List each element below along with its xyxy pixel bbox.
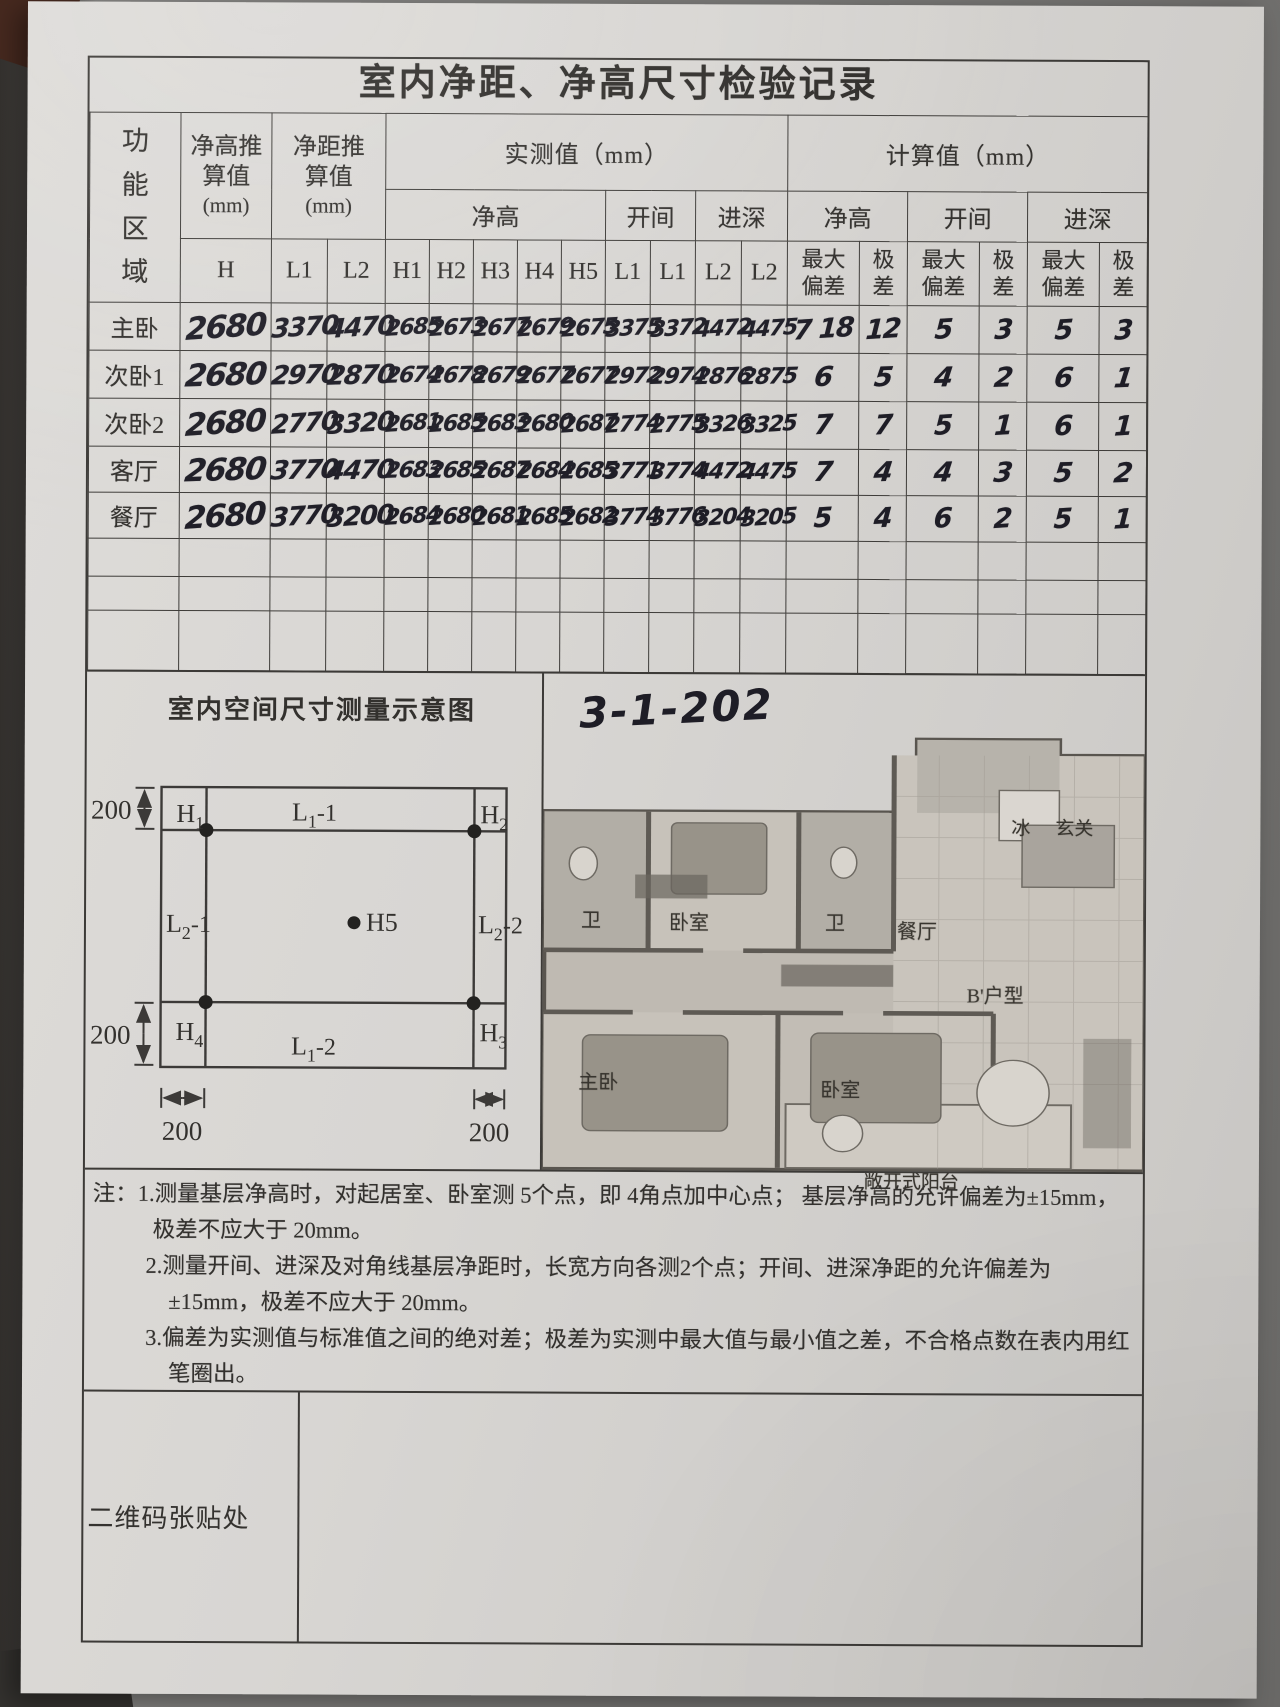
handwritten-value: 1	[1113, 410, 1132, 442]
room-label: 餐厅	[897, 915, 937, 944]
floorplan-svg	[542, 736, 1145, 1173]
value-cell: 2679	[517, 304, 561, 352]
floorplan: 冰玄关卫卧室卫餐厅B'户型主卧卧室敞开式阳台	[542, 736, 1145, 1173]
value-cell	[1026, 542, 1098, 580]
value-cell: 3370	[271, 303, 327, 351]
notes-section: 注：1.测量基层净高时，对起居室、卧室测 5个点，即 4角点加中心点； 基层净高…	[84, 1168, 1143, 1395]
header-clear-height: 净高	[385, 189, 605, 240]
table-row: 餐厅26803770320026842680268126852682377437…	[88, 492, 1146, 543]
handwritten-value: 6	[1053, 410, 1072, 442]
value-cell: 4472	[694, 449, 740, 495]
value-cell: 2685	[429, 400, 473, 448]
handwritten-value: 3325	[741, 411, 798, 440]
value-cell	[1098, 614, 1146, 674]
area-cell	[88, 610, 179, 670]
value-cell	[472, 540, 516, 578]
value-cell: 5	[907, 402, 979, 450]
value-cell: 4472	[695, 305, 741, 353]
edge-label-l1-1: L1-1	[292, 797, 337, 831]
value-cell	[326, 611, 384, 671]
handwritten-value: 7	[873, 409, 892, 441]
paper-sheet: 室内净距、净高尺寸检验记录 功能区域 净高推算值(mm) 净距推算值(mm) 实…	[21, 1, 1264, 1698]
value-cell: 5	[786, 495, 858, 541]
handwritten-value: 2680	[183, 355, 268, 394]
handwritten-value: 4475	[739, 459, 797, 486]
point-label-h1: H1	[176, 799, 204, 833]
value-cell: 7	[787, 401, 859, 449]
value-cell: 4475	[741, 305, 787, 353]
value-cell: 2875	[741, 353, 787, 401]
col-L2: L2	[327, 239, 385, 303]
inspection-table: 功能区域 净高推算值(mm) 净距推算值(mm) 实测值（mm） 计算值（mm）…	[87, 112, 1149, 676]
table-row: 次卧12680297028702674267826792677267729722…	[89, 350, 1147, 403]
handwritten-value: 2680	[183, 450, 268, 489]
value-cell	[1098, 542, 1146, 580]
value-cell: 3325	[741, 401, 787, 449]
header-bay: 开间	[605, 190, 695, 240]
value-cell	[649, 613, 694, 673]
value-cell: 2970	[271, 351, 327, 399]
col-range-depth: 极差	[1099, 242, 1147, 306]
value-cell: 2680	[517, 400, 561, 448]
header-height-calc: 净高推算值(mm)	[180, 112, 272, 238]
photo-background: 室内净距、净高尺寸检验记录 功能区域 净高推算值(mm) 净距推算值(mm) 实…	[0, 0, 1280, 1707]
area-cell: 客厅	[88, 446, 179, 492]
value-cell	[740, 541, 786, 579]
value-cell	[786, 579, 858, 613]
col-H2: H2	[429, 240, 473, 304]
diagram-row: 室内空间尺寸测量示意图	[85, 670, 1145, 1173]
area-cell: 主卧	[89, 302, 180, 350]
room-label: 卫	[581, 904, 601, 933]
unit-number-handwritten: 3-1-202	[578, 679, 775, 737]
value-cell: 5	[1027, 306, 1099, 354]
handwritten-value: 2680	[184, 402, 266, 443]
value-cell	[1098, 580, 1146, 614]
point-label-h4: H4	[175, 1017, 203, 1051]
value-cell	[179, 538, 270, 576]
handwritten-value: 3	[994, 314, 1013, 346]
header-calculated: 计算值（mm）	[788, 115, 1148, 193]
value-cell: 2685	[560, 448, 604, 494]
value-cell: 1	[1099, 402, 1147, 450]
value-cell	[858, 579, 906, 613]
measurement-diagram: 室内空间尺寸测量示意图	[85, 672, 544, 1170]
value-cell: 2687	[472, 448, 516, 494]
col-maxdev-h: 最大偏差	[787, 241, 859, 305]
handwritten-value: 4475	[741, 315, 798, 344]
header-dist-calc: 净距推算值(mm)	[271, 113, 386, 239]
value-cell	[560, 612, 604, 672]
value-cell: 3372	[650, 305, 695, 353]
value-cell: 2680	[180, 350, 271, 398]
point-label-h5: H5	[366, 908, 398, 937]
col-H1: H1	[385, 239, 429, 303]
floorplan-panel: 3-1-202	[542, 674, 1145, 1173]
value-cell	[1026, 614, 1098, 674]
value-cell	[428, 578, 472, 612]
col-range-h: 极差	[859, 241, 907, 305]
value-cell	[560, 540, 604, 578]
value-cell	[516, 578, 560, 612]
handwritten-value: 2680	[185, 306, 267, 347]
handwritten-value: 5	[1052, 457, 1073, 489]
handwritten-value: 4	[872, 457, 893, 489]
col-maxdev-bay: 最大偏差	[907, 242, 979, 306]
col-H3: H3	[473, 240, 517, 304]
col-L1b: L1	[650, 241, 695, 305]
table-row	[88, 538, 1146, 581]
diagram-title: 室内空间尺寸测量示意图	[168, 694, 476, 725]
value-cell: 2683	[473, 400, 517, 448]
dim-200-bottom-b: 200	[469, 1117, 510, 1147]
room-label: 主卧	[578, 1066, 618, 1095]
dimension-marks	[134, 788, 505, 1110]
table-row: 次卧22680277033202681268526832680268727742…	[89, 398, 1147, 451]
area-cell	[88, 576, 179, 610]
value-cell	[472, 578, 516, 612]
table-row	[88, 610, 1146, 675]
value-cell: 3	[979, 306, 1027, 354]
measure-points	[199, 823, 482, 1010]
col-maxdev-depth: 最大偏差	[1027, 242, 1099, 306]
value-cell	[428, 540, 472, 578]
handwritten-value: 3	[992, 457, 1013, 489]
edge-label-l2-1: L2-1	[166, 909, 211, 943]
value-cell	[604, 612, 649, 672]
value-cell: 2682	[560, 494, 604, 540]
value-cell	[858, 541, 906, 579]
note-line-2: 2.测量开间、进深及对角线基层净距时，长宽方向各测2个点；开间、进深净距的允许偏…	[88, 1248, 1132, 1325]
edge-label-l1-2: L1-2	[291, 1031, 336, 1065]
handwritten-value: 1	[993, 410, 1012, 442]
qr-paste-label: 二维码张贴处	[83, 1392, 300, 1642]
value-cell: 2679	[473, 352, 517, 400]
room-label: 玄关	[1055, 814, 1093, 841]
handwritten-value: 6	[933, 503, 952, 535]
form-title: 室内净距、净高尺寸检验记录	[90, 58, 1148, 117]
value-cell	[270, 577, 326, 611]
value-cell: 6	[1027, 402, 1099, 450]
value-cell: 7	[859, 401, 907, 449]
dim-200-top-left: 200	[91, 795, 132, 825]
value-cell: 4	[858, 449, 906, 495]
value-cell: 12	[859, 305, 907, 353]
table-body: 主卧26803370447026852673267726792675337533…	[88, 302, 1148, 675]
value-cell: 3	[978, 450, 1026, 496]
area-cell: 次卧1	[89, 350, 180, 398]
value-cell: 7 18	[787, 305, 859, 353]
value-cell: 1	[1099, 354, 1147, 402]
point-label-h2: H2	[480, 800, 508, 834]
value-cell	[978, 614, 1026, 674]
handwritten-value: 7 18	[792, 312, 853, 347]
value-cell: 2974	[650, 353, 695, 401]
value-cell: 3770	[270, 493, 326, 539]
value-cell: 3776	[649, 495, 694, 541]
value-cell: 3	[1099, 306, 1147, 354]
value-cell: 4	[907, 354, 979, 402]
col-L2b: L2	[741, 241, 787, 305]
value-cell	[906, 580, 978, 614]
area-cell: 次卧2	[89, 398, 180, 446]
handwritten-value: 7	[812, 456, 833, 488]
value-cell	[740, 613, 786, 673]
handwritten-value: 6	[1052, 362, 1073, 394]
value-cell: 2680	[180, 398, 271, 446]
value-cell: 3774	[604, 494, 649, 540]
value-cell: 2774	[605, 400, 650, 448]
value-cell: 2677	[473, 304, 517, 352]
value-cell	[326, 539, 384, 577]
edge-label-l2-2: L2-2	[478, 910, 523, 944]
col-range-bay: 极差	[979, 242, 1027, 306]
area-cell: 餐厅	[88, 492, 179, 538]
value-cell: 2770	[271, 399, 327, 447]
value-cell	[740, 579, 786, 613]
value-cell: 2678	[429, 352, 473, 400]
value-cell: 2675	[561, 304, 605, 352]
value-cell	[384, 539, 428, 577]
value-cell	[694, 541, 740, 579]
qr-section: 二维码张贴处	[83, 1390, 1142, 1646]
value-cell: 4	[858, 495, 906, 541]
col-H4: H4	[517, 240, 561, 304]
value-cell	[786, 541, 858, 579]
value-cell: 2870	[327, 351, 385, 399]
header-bay-calc: 开间	[908, 192, 1028, 243]
handwritten-value: 7	[813, 409, 832, 441]
col-H: H	[180, 238, 271, 302]
handwritten-value: 2680	[184, 495, 266, 536]
value-cell	[516, 540, 560, 578]
value-cell	[604, 578, 649, 612]
handwritten-value: 1	[1113, 503, 1132, 535]
value-cell: 7	[786, 449, 858, 495]
value-cell	[604, 540, 649, 578]
value-cell	[786, 613, 858, 673]
value-cell	[179, 576, 270, 610]
value-cell: 2680	[179, 492, 270, 538]
value-cell	[428, 612, 472, 672]
room-label: 冰	[1011, 814, 1030, 841]
value-cell: 3771	[604, 448, 649, 494]
dim-200-bottom-a: 200	[162, 1116, 203, 1146]
handwritten-value: 5	[1053, 503, 1072, 535]
value-cell: 3770	[270, 447, 326, 493]
room-label: 卧室	[669, 906, 709, 935]
value-cell	[1026, 580, 1098, 614]
header-depth: 进深	[695, 191, 787, 241]
handwritten-value: 5	[934, 314, 953, 346]
area-cell	[88, 538, 179, 576]
value-cell	[906, 614, 978, 674]
value-cell	[326, 577, 384, 611]
value-cell: 2680	[180, 302, 271, 350]
value-cell	[649, 579, 694, 613]
value-cell	[516, 612, 560, 672]
value-cell	[906, 542, 978, 580]
room-label: 卫	[825, 907, 845, 936]
value-cell: 6	[906, 496, 978, 542]
point-label-h3: H3	[479, 1018, 507, 1052]
dim-200-bottom-left: 200	[90, 1020, 131, 1050]
value-cell: 2673	[429, 304, 473, 352]
value-cell: 2680	[428, 494, 472, 540]
notes-prefix: 注：	[93, 1181, 138, 1206]
value-cell	[858, 613, 906, 673]
handwritten-value: 5	[813, 502, 832, 534]
table-row: 主卧26803370447026852673267726792675337533…	[89, 302, 1147, 355]
header-depth-calc: 进深	[1028, 192, 1148, 243]
handwritten-value: 4	[932, 362, 953, 394]
value-cell: 2684	[516, 448, 560, 494]
value-cell: 5	[1026, 450, 1098, 496]
room-label: 卧室	[820, 1074, 860, 1103]
header-measured: 实测值（mm）	[386, 113, 788, 191]
room-label: B'户型	[967, 979, 1024, 1008]
value-cell: 3204	[694, 495, 740, 541]
value-cell	[384, 577, 428, 611]
handwritten-value: 4	[873, 502, 892, 534]
header-row-3: H L1 L2 H1 H2 H3 H4 H5 L1 L1 L2 L2 最大偏差 …	[89, 238, 1147, 307]
value-cell: 4	[906, 450, 978, 496]
handwritten-value: 6	[812, 361, 833, 393]
value-cell	[649, 541, 694, 579]
header-row-1: 功能区域 净高推算值(mm) 净距推算值(mm) 实测值（mm） 计算值（mm）	[90, 112, 1148, 193]
col-H5: H5	[561, 240, 605, 304]
table-row: 客厅26803770447026832685268726842685377137…	[88, 446, 1146, 497]
handwritten-value: 2	[1112, 458, 1133, 490]
value-cell: 2775	[650, 401, 695, 449]
handwritten-value: 5	[872, 362, 893, 394]
handwritten-value: 2875	[740, 364, 798, 391]
col-L2a: L2	[695, 241, 741, 305]
value-cell: 2677	[517, 352, 561, 400]
value-cell	[270, 611, 326, 671]
diagram-svg: 室内空间尺寸测量示意图	[85, 672, 542, 1170]
value-cell	[978, 542, 1026, 580]
value-cell: 3205	[740, 495, 786, 541]
value-cell: 2674	[385, 351, 429, 399]
header-clear-height-calc: 净高	[788, 191, 908, 242]
value-cell: 1	[979, 402, 1027, 450]
table-row	[88, 576, 1146, 615]
value-cell	[472, 612, 516, 672]
value-cell: 4475	[740, 449, 786, 495]
value-cell: 3326	[695, 401, 741, 449]
value-cell: 2685	[428, 448, 472, 494]
value-cell: 2	[1098, 450, 1146, 496]
handwritten-value: 2	[993, 503, 1012, 535]
value-cell: 5	[907, 306, 979, 354]
value-cell: 3375	[605, 304, 650, 352]
col-L1: L1	[271, 239, 327, 303]
value-cell	[560, 578, 604, 612]
handwritten-value: 5	[933, 410, 952, 442]
value-cell: 2	[979, 354, 1027, 402]
handwritten-value: 3	[1114, 314, 1133, 346]
value-cell: 2677	[561, 352, 605, 400]
note-line-1: 注：1.测量基层净高时，对起居室、卧室测 5个点，即 4角点加中心点； 基层净高…	[89, 1176, 1133, 1253]
value-cell	[384, 611, 428, 671]
handwritten-value: 1	[1112, 363, 1133, 395]
handwritten-value: 3205	[740, 504, 797, 533]
handwritten-value: 4	[932, 457, 953, 489]
value-cell: 5	[859, 353, 907, 401]
value-cell: 6	[787, 353, 859, 401]
value-cell: 2972	[605, 352, 650, 400]
value-cell: 2680	[179, 446, 270, 492]
value-cell: 6	[1027, 354, 1099, 402]
note-line-3: 3.偏差为实测值与标准值之间的绝对差；极差为实测中最大值与最小值之差，不合格点数…	[88, 1320, 1132, 1397]
value-cell: 1	[1098, 496, 1146, 542]
value-cell	[978, 580, 1026, 614]
value-cell	[270, 539, 326, 577]
form-frame: 室内净距、净高尺寸检验记录 功能区域 净高推算值(mm) 净距推算值(mm) 实…	[81, 56, 1150, 1648]
value-cell: 2876	[695, 353, 741, 401]
handwritten-value: 5	[1054, 314, 1073, 346]
handwritten-value: 2	[992, 362, 1013, 394]
col-L1a: L1	[605, 240, 650, 304]
value-cell: 2687	[561, 400, 605, 448]
value-cell: 2	[978, 496, 1026, 542]
header-area: 功能区域	[89, 112, 181, 302]
handwritten-value: 12	[865, 313, 901, 346]
value-cell	[179, 610, 270, 670]
value-cell	[694, 579, 740, 613]
value-cell: 5	[1026, 496, 1098, 542]
value-cell: 2681	[472, 494, 516, 540]
value-cell	[694, 613, 740, 673]
value-cell: 2685	[516, 494, 560, 540]
value-cell: 3774	[649, 449, 694, 495]
